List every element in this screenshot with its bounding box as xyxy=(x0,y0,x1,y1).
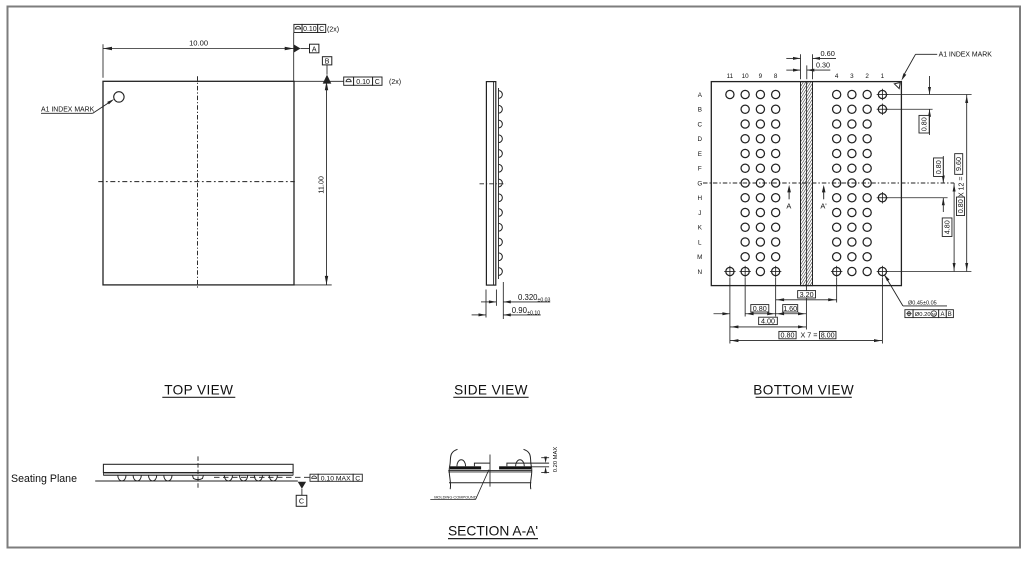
svg-text:X 7 =: X 7 = xyxy=(801,331,818,340)
svg-text:3.20: 3.20 xyxy=(800,290,814,299)
svg-text:1: 1 xyxy=(881,73,885,80)
svg-text:(2x): (2x) xyxy=(389,79,401,86)
svg-text:BOTTOM VIEW: BOTTOM VIEW xyxy=(753,382,854,397)
svg-text:MOLDING COMPOUND: MOLDING COMPOUND xyxy=(434,494,477,499)
svg-text:A: A xyxy=(312,46,317,53)
svg-text:10.00: 10.00 xyxy=(189,39,208,48)
svg-text:X 12 =: X 12 = xyxy=(958,177,965,197)
svg-text:8: 8 xyxy=(774,73,778,80)
svg-text:B: B xyxy=(325,59,330,66)
svg-text:SIDE VIEW: SIDE VIEW xyxy=(454,382,528,397)
svg-text:H: H xyxy=(698,195,703,202)
svg-text:0.10: 0.10 xyxy=(303,26,317,33)
svg-text:0.80: 0.80 xyxy=(934,160,943,174)
svg-text:0.80: 0.80 xyxy=(781,331,795,340)
svg-text:Ø0.20: Ø0.20 xyxy=(915,312,931,318)
svg-text:A': A' xyxy=(820,202,827,211)
svg-text:N: N xyxy=(698,269,703,276)
svg-text:10: 10 xyxy=(742,73,750,80)
svg-text:M: M xyxy=(697,254,702,261)
svg-text:B: B xyxy=(698,107,702,114)
svg-text:0.10 MAX: 0.10 MAX xyxy=(321,475,351,482)
svg-text:±0.03: ±0.03 xyxy=(538,298,551,304)
svg-text:J: J xyxy=(698,210,701,217)
svg-text:0.90: 0.90 xyxy=(512,306,528,315)
svg-text:0.320: 0.320 xyxy=(518,293,538,302)
svg-text:A1 INDEX MARK: A1 INDEX MARK xyxy=(939,51,993,58)
svg-text:±0.10: ±0.10 xyxy=(527,310,540,316)
svg-text:0.80: 0.80 xyxy=(753,304,767,313)
svg-text:Ø0.45±0.05: Ø0.45±0.05 xyxy=(908,300,937,306)
svg-text:9.60: 9.60 xyxy=(954,157,963,171)
svg-text:4.80: 4.80 xyxy=(943,220,952,234)
svg-text:F: F xyxy=(698,166,702,173)
svg-text:C: C xyxy=(698,121,703,128)
svg-text:A1 INDEX MARK: A1 INDEX MARK xyxy=(41,106,95,113)
svg-text:TOP VIEW: TOP VIEW xyxy=(164,382,233,397)
svg-text:A: A xyxy=(940,312,944,318)
svg-text:8.00: 8.00 xyxy=(821,331,835,340)
svg-text:(2x): (2x) xyxy=(327,26,339,33)
svg-text:A: A xyxy=(786,202,791,211)
svg-text:3: 3 xyxy=(850,73,854,80)
svg-text:11.00: 11.00 xyxy=(317,176,326,193)
svg-text:C: C xyxy=(355,475,360,482)
svg-text:1.60: 1.60 xyxy=(783,304,797,313)
svg-text:0.60: 0.60 xyxy=(821,49,835,58)
svg-text:0.10: 0.10 xyxy=(356,79,370,86)
svg-text:0.80: 0.80 xyxy=(920,117,929,131)
svg-text:4: 4 xyxy=(835,73,839,80)
svg-text:E: E xyxy=(698,151,702,158)
svg-text:11: 11 xyxy=(727,73,734,80)
svg-text:C: C xyxy=(375,79,380,86)
svg-text:4.00: 4.00 xyxy=(761,316,775,325)
svg-text:SECTION A-A': SECTION A-A' xyxy=(448,524,538,539)
svg-text:M: M xyxy=(932,312,936,317)
svg-text:0.80: 0.80 xyxy=(956,199,965,213)
svg-text:C: C xyxy=(299,497,304,506)
svg-text:0.20 MAX: 0.20 MAX xyxy=(553,447,559,473)
svg-text:L: L xyxy=(698,239,702,246)
svg-text:0.30: 0.30 xyxy=(816,60,830,69)
svg-text:2: 2 xyxy=(865,73,869,80)
svg-text:D: D xyxy=(698,136,703,143)
svg-text:9: 9 xyxy=(759,73,763,80)
svg-text:C: C xyxy=(319,26,324,33)
svg-text:Seating Plane: Seating Plane xyxy=(11,473,77,485)
svg-text:G: G xyxy=(697,180,702,187)
svg-text:B: B xyxy=(948,312,952,318)
